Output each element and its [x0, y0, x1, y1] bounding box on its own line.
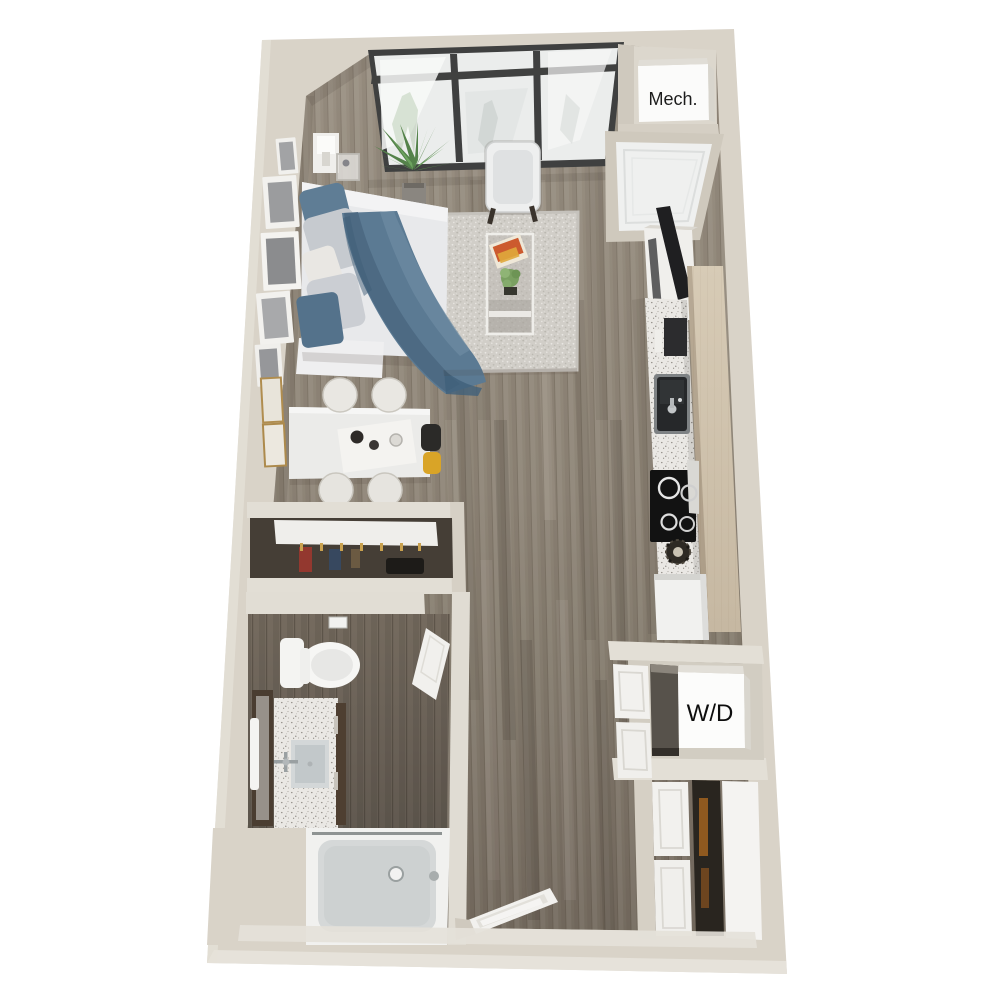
svg-text:W/D: W/D: [687, 700, 734, 727]
svg-text:Mech.: Mech.: [648, 89, 697, 109]
